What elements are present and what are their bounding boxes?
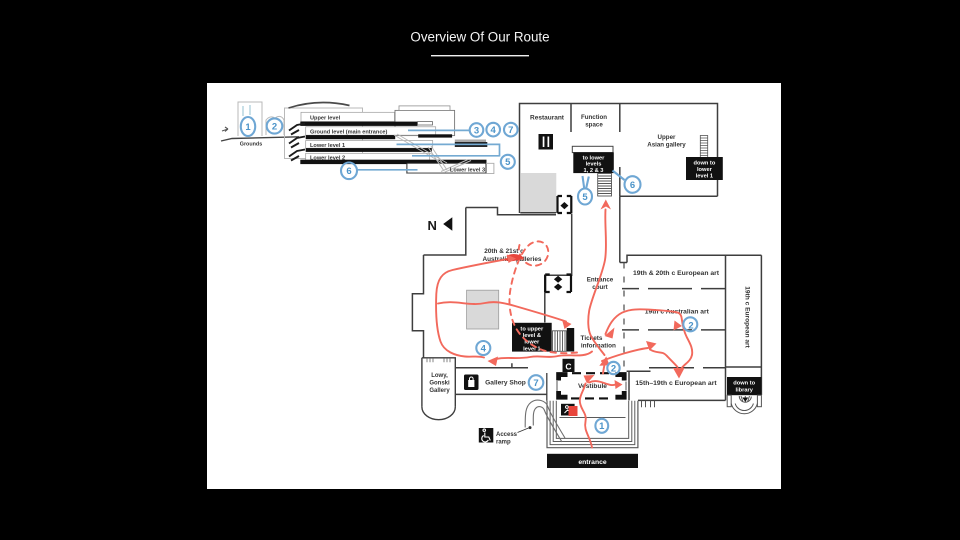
svg-text:level 1: level 1	[696, 174, 713, 180]
svg-text:Gonski: Gonski	[429, 381, 450, 387]
svg-text:5: 5	[505, 157, 511, 168]
svg-text:Vestibule: Vestibule	[578, 383, 607, 390]
svg-text:2: 2	[611, 363, 616, 374]
svg-text:Grounds: Grounds	[240, 142, 262, 148]
svg-text:7: 7	[533, 378, 538, 389]
svg-text:Gallery: Gallery	[429, 388, 450, 394]
svg-text:3: 3	[474, 125, 479, 136]
svg-text:space: space	[585, 122, 603, 129]
svg-text:15th–19th c European art: 15th–19th c European art	[635, 380, 717, 387]
svg-text:2: 2	[688, 320, 693, 331]
svg-text:Ground level (main entrance): Ground level (main entrance)	[310, 129, 388, 135]
svg-text:N: N	[428, 218, 437, 233]
svg-text:to upper: to upper	[520, 326, 544, 332]
svg-text:entrance: entrance	[578, 459, 607, 466]
svg-text:Overview Of Our Route: Overview Of Our Route	[410, 30, 549, 45]
svg-text:level 1: level 1	[523, 346, 540, 352]
svg-text:Upper level: Upper level	[310, 115, 341, 121]
svg-text:Access: Access	[496, 432, 518, 438]
svg-text:library: library	[736, 388, 754, 394]
svg-text:Function: Function	[581, 114, 607, 121]
svg-text:Asian gallery: Asian gallery	[647, 142, 686, 149]
svg-text:Gallery Shop: Gallery Shop	[485, 379, 526, 386]
svg-text:4: 4	[481, 343, 487, 354]
svg-text:ramp: ramp	[496, 440, 511, 446]
svg-text:to lower: to lower	[583, 155, 606, 161]
svg-text:down to: down to	[694, 161, 716, 167]
svg-text:2: 2	[272, 122, 277, 133]
svg-text:6: 6	[630, 180, 635, 191]
svg-text:court: court	[592, 284, 607, 291]
svg-text:1, 2 & 3: 1, 2 & 3	[584, 168, 604, 174]
svg-text:Lowy,: Lowy,	[431, 373, 448, 379]
svg-text:5: 5	[582, 192, 588, 203]
svg-text:lower: lower	[697, 167, 713, 173]
svg-text:Lower level 1: Lower level 1	[310, 143, 345, 149]
svg-text:7: 7	[508, 125, 513, 136]
svg-text:Restaurant: Restaurant	[530, 115, 565, 122]
svg-text:1: 1	[599, 421, 605, 432]
svg-text:level &: level &	[523, 333, 541, 339]
svg-text:19th c European art: 19th c European art	[744, 286, 751, 348]
svg-text:19th & 20th c European art: 19th & 20th c European art	[633, 270, 720, 277]
svg-text:4: 4	[491, 125, 497, 136]
svg-text:down to: down to	[733, 381, 755, 387]
svg-text:levels: levels	[586, 162, 602, 168]
svg-text:Lower level 3: Lower level 3	[450, 167, 485, 173]
svg-text:C: C	[565, 362, 571, 372]
svg-text:1: 1	[245, 122, 251, 133]
svg-text:Upper: Upper	[658, 134, 676, 141]
svg-text:6: 6	[346, 166, 351, 177]
